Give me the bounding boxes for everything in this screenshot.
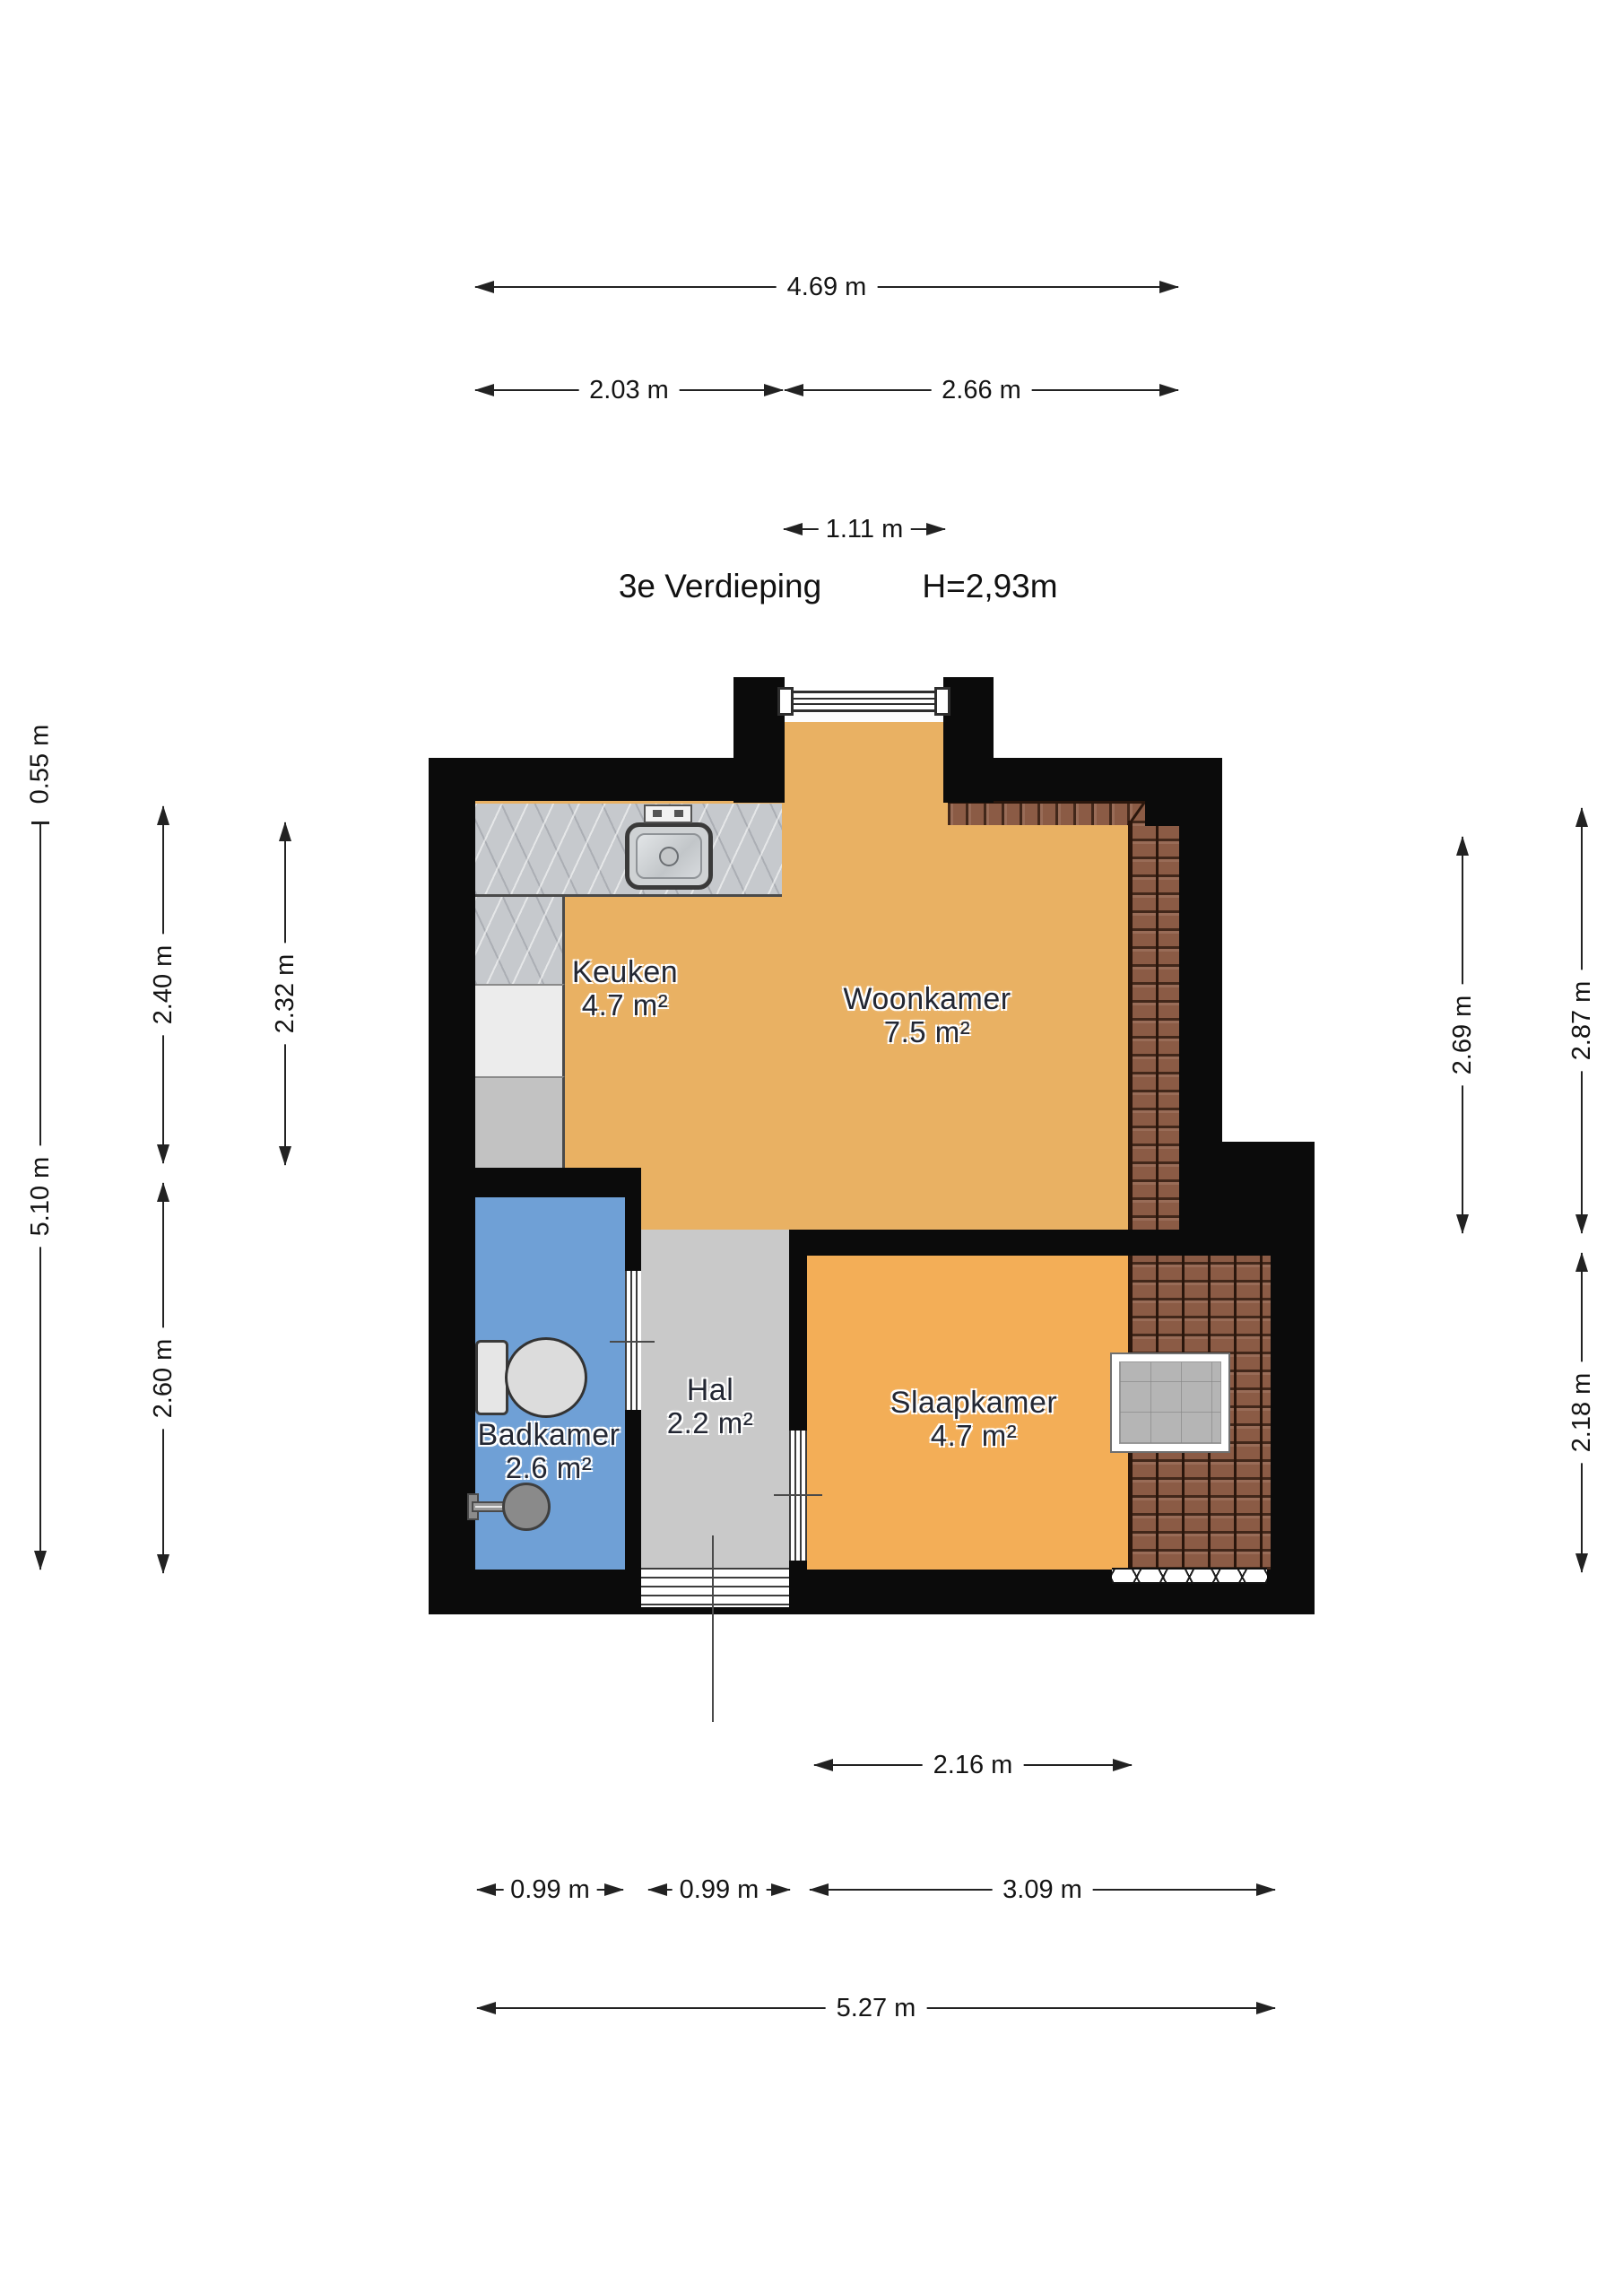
wall-right-lower — [1271, 1244, 1315, 1614]
room-name: Woonkamer — [843, 983, 1011, 1016]
room-area: 4.7 m² — [572, 989, 678, 1022]
dimension-dormer-width: 1.11 m — [783, 517, 946, 542]
room-label-keuken: Keuken 4.7 m² — [572, 956, 678, 1022]
kitchen-sink-icon — [625, 822, 713, 890]
dimension-left-offset-label: 0.55 m — [26, 717, 56, 812]
dimension-top-total: 4.69 m — [474, 274, 1179, 300]
room-label-hal: Hal 2.2 m² — [667, 1374, 754, 1440]
room-area: 7.5 m² — [843, 1016, 1011, 1048]
shower-head-icon — [502, 1483, 551, 1531]
wall-top-right — [994, 758, 1222, 801]
room-label-slaapkamer: Slaapkamer 4.7 m² — [890, 1387, 1057, 1453]
dimension-top-left: 2.03 m — [474, 378, 784, 403]
roof-tiles-top-band — [948, 801, 1145, 825]
room-label-badkamer: Badkamer 2.6 m² — [478, 1419, 621, 1485]
dormer-window-icon — [785, 691, 943, 712]
door-tick-slaapkamer — [774, 1494, 822, 1496]
knee-wall-hatch-band — [1112, 1568, 1267, 1584]
dimension-slaapkamer-width: 2.16 m — [813, 1752, 1133, 1778]
faucet-icon — [644, 804, 692, 823]
entrance-door-swing-line — [712, 1535, 714, 1722]
room-name: Slaapkamer — [890, 1387, 1057, 1420]
toilet-tank-icon — [475, 1340, 508, 1415]
kitchen-counter-left-marble — [475, 897, 565, 984]
wall-right-upper — [1179, 801, 1222, 1142]
dimension-slaapkamer-depth: 2.18 m — [1569, 1252, 1594, 1573]
wall-badkamer-top — [429, 1168, 641, 1197]
entrance-door-opening — [641, 1568, 789, 1607]
wall-corner-wedge — [1145, 801, 1179, 826]
dimension-bottom-right: 3.09 m — [809, 1877, 1276, 1902]
room-area: 4.7 m² — [890, 1420, 1057, 1452]
toilet-bowl-icon — [505, 1337, 587, 1418]
room-area: 2.2 m² — [667, 1407, 754, 1439]
wall-top-left — [429, 758, 733, 801]
room-name: Hal — [667, 1374, 754, 1407]
dimension-badkamer-width: 0.99 m — [476, 1877, 624, 1902]
window-cap-right — [934, 687, 950, 716]
room-area: 2.6 m² — [478, 1452, 621, 1484]
dimension-hal-width: 0.99 m — [647, 1877, 791, 1902]
door-tick-badkamer — [610, 1341, 655, 1343]
skylight-icon — [1110, 1352, 1230, 1453]
dimension-top-right: 2.66 m — [784, 378, 1179, 403]
room-name: Badkamer — [478, 1419, 621, 1452]
dormer-window-sill — [785, 712, 943, 722]
room-label-woonkamer: Woonkamer 7.5 m² — [843, 983, 1011, 1049]
wall-dormer-post-right — [943, 677, 994, 803]
dimension-right-depth-outer: 2.87 m — [1569, 807, 1594, 1234]
kitchen-cabinet-gray — [475, 1076, 565, 1168]
kitchen-appliance-white — [475, 984, 565, 1076]
floor-title: 3e Verdieping — [619, 568, 821, 605]
dimension-left-total: 5.10 m — [28, 822, 53, 1570]
floor-dormer-strip — [782, 720, 944, 803]
roof-tiles-right-strip — [1128, 821, 1181, 1242]
wall-slaapkamer-top — [789, 1230, 1315, 1256]
dimension-keuken-depth: 2.40 m — [151, 805, 176, 1164]
dimension-badkamer-depth: 2.60 m — [151, 1182, 176, 1574]
room-name: Keuken — [572, 956, 678, 989]
window-cap-left — [777, 687, 794, 716]
dimension-keuken-depth-inner: 2.32 m — [273, 822, 298, 1166]
dimension-right-depth-inner: 2.69 m — [1450, 836, 1475, 1234]
dimension-bottom-total: 5.27 m — [476, 1996, 1276, 2021]
floorplan-page: 3e Verdieping H=2,93m Keuken 4.7 m² Woon… — [0, 0, 1623, 2296]
ceiling-height-label: H=2,93m — [922, 568, 1057, 605]
